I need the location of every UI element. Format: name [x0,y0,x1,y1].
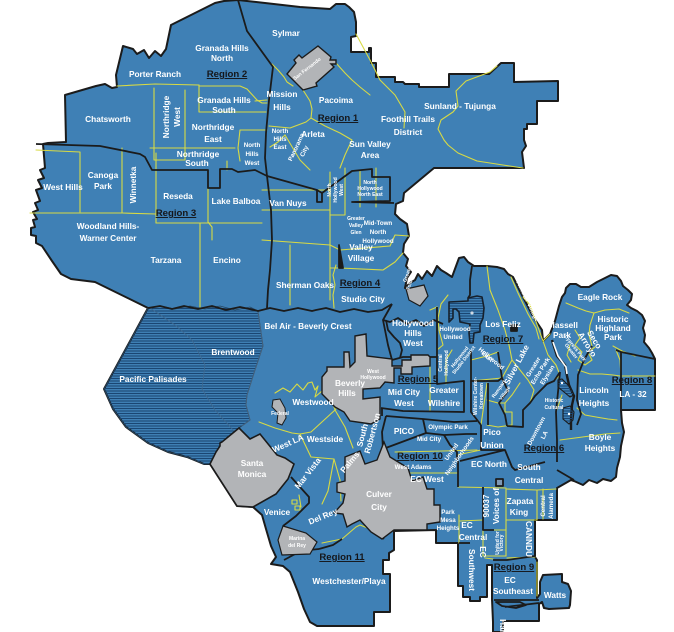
svg-text:Koreatown: Koreatown [479,383,485,409]
svg-text:Sherman Oaks: Sherman Oaks [276,280,334,290]
svg-text:Lincoln: Lincoln [579,385,609,395]
svg-text:Warner Center: Warner Center [80,233,138,243]
svg-text:Eagle Rock: Eagle Rock [578,292,623,302]
svg-text:Hills: Hills [273,102,291,112]
svg-text:Porter Ranch: Porter Ranch [129,69,181,79]
svg-text:Victory: Victory [499,534,505,551]
svg-text:Granada Hills: Granada Hills [197,95,251,105]
svg-text:Central: Central [540,495,547,517]
svg-text:South: South [212,105,236,115]
svg-text:Westchester/Playa: Westchester/Playa [312,576,386,586]
svg-text:Westwood: Westwood [292,397,333,407]
svg-text:Van Nuys: Van Nuys [269,198,307,208]
svg-text:del Rey: del Rey [288,543,306,549]
svg-text:Studio City: Studio City [341,294,385,304]
svg-text:Cultural: Cultural [545,405,565,411]
svg-text:EC North: EC North [471,459,507,469]
svg-text:West: West [245,160,260,167]
svg-text:West: West [339,184,345,196]
svg-text:Sun Valley: Sun Valley [349,139,391,149]
svg-text:Glen: Glen [350,230,361,236]
svg-text:Heights: Heights [579,398,610,408]
svg-text:Canoga: Canoga [88,170,119,180]
svg-text:Mid City: Mid City [417,436,442,443]
svg-text:Federal: Federal [271,411,289,417]
svg-text:Mission: Mission [267,89,298,99]
svg-text:Hills: Hills [338,388,356,398]
svg-text:North: North [370,229,387,236]
svg-text:Mesa: Mesa [440,517,456,524]
svg-text:EC: EC [478,546,488,558]
svg-text:90037: 90037 [481,494,491,517]
svg-text:Pico: Pico [483,427,501,437]
svg-text:Hills: Hills [245,151,259,158]
svg-text:Region 1: Region 1 [318,113,359,124]
svg-text:Granada Hills: Granada Hills [195,43,249,53]
svg-text:Venice: Venice [264,507,291,517]
svg-text:Sunland - Tujunga: Sunland - Tujunga [424,101,496,111]
svg-text:Watts: Watts [544,590,567,600]
svg-text:Southeast: Southeast [493,586,533,596]
svg-text:South: South [185,158,209,168]
svg-text:Hollywood: Hollywood [392,318,434,328]
svg-text:Monica: Monica [238,469,267,479]
svg-text:Winnetka: Winnetka [128,166,138,203]
svg-text:Greater: Greater [347,216,365,222]
svg-text:Region 2: Region 2 [207,69,248,80]
svg-text:United: United [443,334,462,341]
svg-text:Heights: Heights [437,525,460,532]
svg-text:Brentwood: Brentwood [211,347,254,357]
svg-text:Northridge: Northridge [192,122,235,132]
svg-text:Marina: Marina [289,536,305,542]
svg-text:West: West [394,398,414,408]
svg-text:North: North [272,128,289,135]
svg-text:North East: North East [357,192,383,198]
svg-text:Historic: Historic [545,398,564,404]
svg-text:Central: Central [459,532,488,542]
svg-text:PICO: PICO [394,426,415,436]
svg-text:Region 7: Region 7 [483,334,524,345]
svg-text:Har: Har [498,619,508,632]
svg-text:Westside: Westside [307,434,344,444]
svg-text:Glassell: Glassell [546,320,578,330]
svg-text:East: East [273,144,286,151]
svg-text:EC West: EC West [410,474,444,484]
svg-text:Valley: Valley [349,223,363,229]
svg-text:Region 5: Region 5 [398,374,439,385]
svg-text:Sylmar: Sylmar [272,28,300,38]
svg-text:EC: EC [504,575,516,585]
svg-text:CANNDU: CANNDU [524,521,534,557]
svg-text:Region 4: Region 4 [340,278,381,289]
svg-text:Greater: Greater [429,385,459,395]
svg-text:Culver: Culver [366,489,393,499]
svg-text:Park: Park [441,509,455,516]
svg-text:Beverly: Beverly [335,378,365,388]
svg-text:Central: Central [515,475,544,485]
svg-text:City: City [371,502,387,512]
svg-text:Chatsworth: Chatsworth [85,114,131,124]
svg-text:Woodland Hills-: Woodland Hills- [77,221,140,231]
svg-text:Area: Area [361,150,380,160]
svg-text:Hills: Hills [273,136,287,143]
svg-text:Los Feliz: Los Feliz [485,319,521,329]
svg-text:North: North [211,53,233,63]
svg-text:Santa: Santa [241,458,264,468]
svg-text:Encino: Encino [213,255,241,265]
svg-text:Alameda: Alameda [548,493,555,519]
svg-text:North: North [244,142,261,149]
svg-text:Voices of: Voices of [491,488,501,525]
svg-text:Hollywood: Hollywood [439,326,470,333]
svg-text:West: West [403,338,423,348]
svg-text:Reseda: Reseda [163,191,193,201]
svg-text:Valley: Valley [349,242,373,252]
svg-text:Mid City: Mid City [388,387,421,397]
svg-text:Olympic Park: Olympic Park [428,424,468,431]
svg-text:EC: EC [461,520,473,530]
svg-text:Region 3: Region 3 [156,208,197,219]
svg-text:Park: Park [94,181,112,191]
svg-text:Region 8: Region 8 [612,375,653,386]
svg-text:Southwest: Southwest [467,549,477,591]
svg-text:Tarzana: Tarzana [151,255,182,265]
svg-text:Hills: Hills [404,328,422,338]
svg-text:East: East [204,134,222,144]
svg-text:Pacific Palisades: Pacific Palisades [119,374,187,384]
svg-text:District: District [394,127,423,137]
svg-text:Region 10: Region 10 [397,451,443,462]
svg-text:Mid-Town: Mid-Town [364,220,393,227]
svg-text:Village: Village [348,253,375,263]
svg-text:Pacoima: Pacoima [319,95,354,105]
svg-text:King: King [510,507,528,517]
svg-text:South: South [517,462,541,472]
svg-text:Zapata: Zapata [507,496,534,506]
svg-text:Hollywood: Hollywood [444,350,450,375]
svg-text:Boyle: Boyle [589,432,612,442]
svg-text:Bel Air - Beverly Crest: Bel Air - Beverly Crest [264,321,352,331]
svg-text:LA - 32: LA - 32 [619,389,647,399]
svg-text:West: West [172,107,182,127]
svg-text:West Adams: West Adams [395,464,432,471]
svg-text:Wilshire: Wilshire [428,398,461,408]
svg-text:Region 9: Region 9 [494,562,535,573]
svg-text:West Hills: West Hills [43,182,83,192]
svg-text:Northridge: Northridge [161,95,171,138]
svg-text:Region 6: Region 6 [524,443,565,454]
svg-text:Park: Park [604,332,622,342]
svg-text:Region 11: Region 11 [319,552,365,563]
svg-text:Union: Union [480,440,504,450]
svg-text:Foothill Trails: Foothill Trails [381,114,435,124]
svg-text:Lake Balboa: Lake Balboa [212,196,261,206]
svg-text:Heights: Heights [585,443,616,453]
